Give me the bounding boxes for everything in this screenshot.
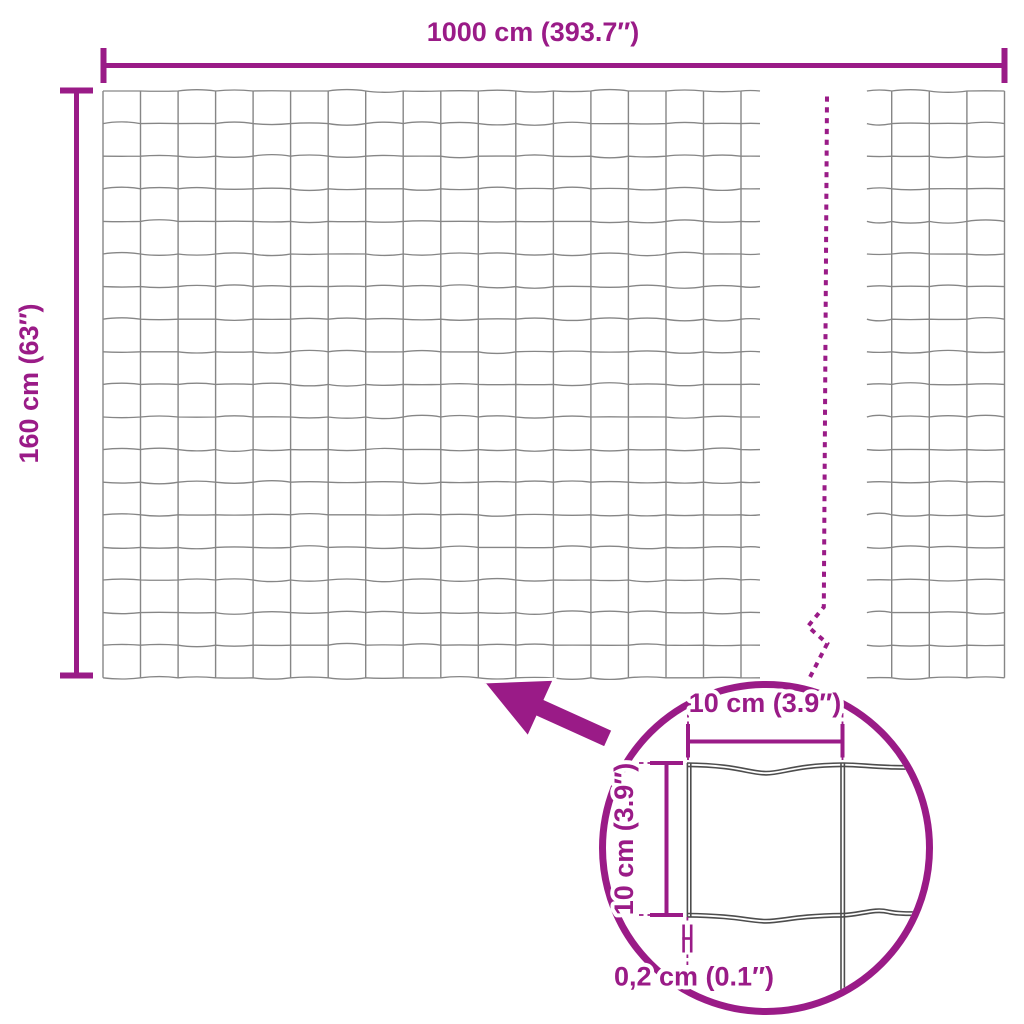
detail-wire-thickness-label: 0,2 cm (0.1″): [614, 962, 774, 992]
mesh-right-horizontal-wire: [867, 677, 1005, 679]
mesh-right-horizontal-wire: [867, 350, 1005, 353]
mesh-right-horizontal-wire: [867, 481, 1005, 483]
mesh-right-horizontal-wire: [867, 513, 1005, 516]
mesh-main-horizontal-wire: [103, 481, 760, 484]
mesh-main-horizontal-wire: [103, 90, 760, 93]
mesh-right-horizontal-wire: [867, 188, 1005, 190]
mesh-main-horizontal-wire: [103, 643, 760, 646]
mesh-main-horizontal-wire: [103, 155, 760, 158]
mesh-right-horizontal-wire: [867, 546, 1005, 548]
total-width-label: 1000 cm (393.7″): [427, 17, 640, 47]
mesh-main-horizontal-wire: [103, 187, 760, 190]
mesh-panel-right: [867, 90, 1005, 680]
mesh-main-horizontal-wire: [103, 514, 760, 516]
diagram-canvas: 1000 cm (393.7″) 160 cm (63″): [0, 0, 1024, 1024]
mesh-right-horizontal-wire: [867, 122, 1005, 125]
mesh-right-horizontal-wire: [867, 90, 1005, 93]
mesh-main-horizontal-wire: [103, 415, 760, 418]
mesh-right-horizontal-wire: [867, 383, 1005, 385]
mesh-right-horizontal-wire: [867, 579, 1005, 581]
mesh-panel-main: [103, 90, 760, 680]
product-dimension-diagram: 1000 cm (393.7″) 160 cm (63″): [0, 0, 1024, 1024]
mesh-main-horizontal-wire: [103, 677, 760, 680]
mesh-right-horizontal-wire: [867, 318, 1005, 321]
mesh-main-horizontal-wire: [103, 383, 760, 386]
total-height-dimension: 160 cm (63″): [14, 91, 93, 677]
mesh-right-horizontal-wire: [867, 415, 1005, 417]
detail-callout: 10 cm (3.9″) 10 cm (3.9″) 0,2 cm (0.1″): [603, 685, 953, 1012]
mesh-right-horizontal-wire: [867, 285, 1005, 287]
detail-wire: [687, 766, 940, 775]
detail-cell-height-dimension: [639, 763, 683, 915]
mesh-main-horizontal-wire: [103, 448, 760, 451]
mesh-right-horizontal-wire: [867, 253, 1005, 255]
mesh-right-horizontal-wire: [867, 611, 1005, 614]
mesh-main-horizontal-wire: [103, 122, 760, 125]
mesh-main-horizontal-wire: [103, 611, 760, 614]
mesh-main-horizontal-wire: [103, 220, 760, 223]
detail-magnified-mesh: [687, 763, 952, 991]
mesh-main-horizontal-wire: [103, 350, 760, 353]
mesh-main-horizontal-wire: [103, 579, 760, 582]
mesh-right-horizontal-wire: [867, 220, 1005, 223]
mesh-right-horizontal-wire: [867, 449, 1005, 450]
mesh-main-horizontal-wire: [103, 252, 760, 255]
mesh-main-horizontal-wire: [103, 546, 760, 549]
total-width-dimension: 1000 cm (393.7″): [103, 17, 1005, 83]
callout-arrow: [483, 679, 613, 748]
detail-cell-width-dimension: [688, 713, 843, 762]
mesh-main-horizontal-wire: [103, 285, 760, 288]
detail-cell-width-label: 10 cm (3.9″): [689, 688, 842, 718]
total-height-label: 160 cm (63″): [14, 303, 44, 463]
mesh-right-horizontal-wire: [867, 156, 1005, 158]
mesh-main-horizontal-wire: [103, 318, 760, 321]
mesh-right-horizontal-wire: [867, 645, 1005, 646]
panel-break-dashed-line: [808, 97, 828, 678]
detail-cell-height-label: 10 cm (3.9″): [609, 763, 639, 916]
